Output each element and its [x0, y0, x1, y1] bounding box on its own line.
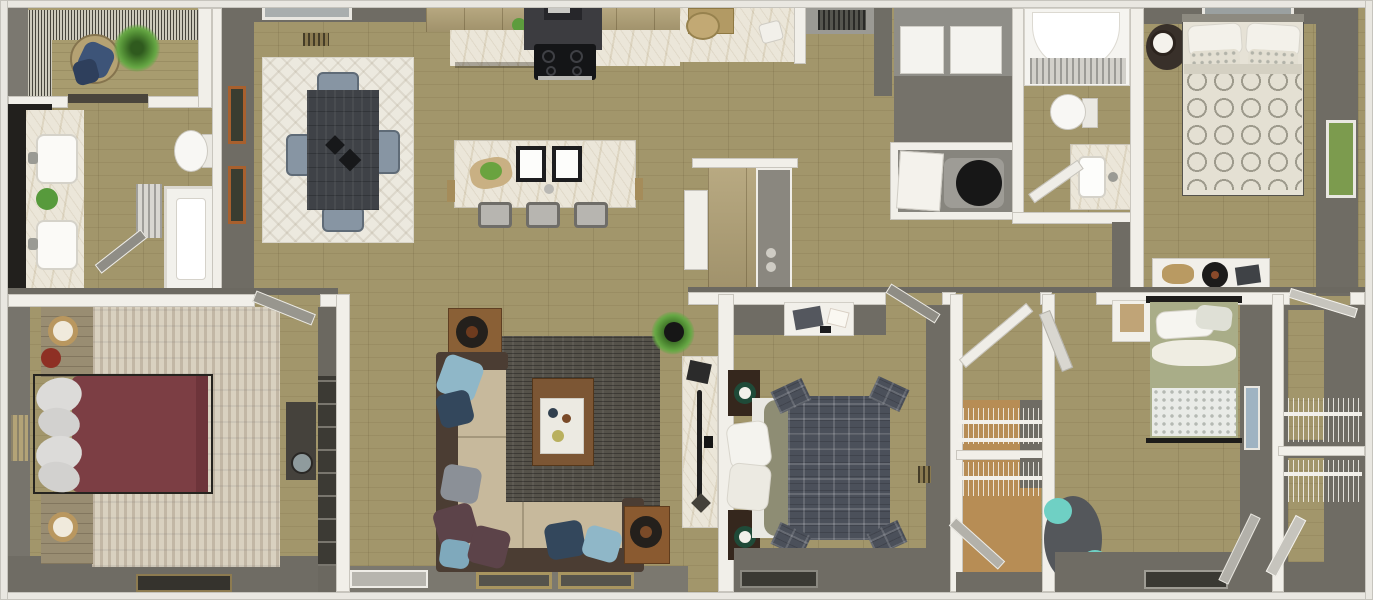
- living-west-wall: [336, 294, 350, 592]
- mbath-sink-1: [36, 134, 78, 184]
- stove-burner-3: [546, 66, 556, 76]
- island-stool-3: [574, 202, 608, 228]
- bed3-duvet: [1184, 68, 1302, 190]
- island-stool-1: [478, 202, 512, 228]
- coffee-table-tray: [540, 398, 584, 454]
- master-lamp-south: [48, 512, 78, 542]
- bed3-dresser-plant: [1162, 264, 1194, 284]
- record-south-center: [640, 526, 652, 538]
- entry-closet-knob-2: [766, 262, 776, 272]
- stove-burner-1: [542, 50, 555, 63]
- dining-west-wall: [222, 8, 254, 296]
- island-faucet: [544, 184, 554, 194]
- dining-wall-art-2: [228, 166, 246, 224]
- outer-wall-left: [0, 0, 8, 600]
- porch-post-right: [198, 8, 212, 108]
- master-floor-mat: [136, 574, 232, 592]
- tray-bottle-2: [562, 414, 571, 423]
- master-mirror: [291, 452, 313, 474]
- closetD-rail: [1284, 472, 1362, 476]
- tv-mount: [704, 436, 713, 448]
- mbath-sink-2: [36, 220, 78, 270]
- entry-closet-door: [756, 168, 792, 292]
- tray-candle: [552, 430, 564, 442]
- sofa-cushion-seam-1: [458, 436, 506, 438]
- dining-wall-art-1: [228, 86, 246, 144]
- living-window-1: [476, 572, 552, 589]
- entry-closet-knob-1: [766, 248, 776, 258]
- mbath-faucet-2: [28, 238, 38, 250]
- stove-handle: [538, 76, 592, 80]
- wall-kitchen-hvac: [794, 6, 806, 64]
- island-handle-right: [635, 178, 643, 200]
- bed4-east-window: [1244, 386, 1260, 450]
- bed2-duvet: [788, 396, 890, 540]
- bed3-doorway-shadow: [1112, 222, 1130, 296]
- bed2-vent: [918, 466, 931, 483]
- washer: [900, 26, 944, 74]
- master-wall-decor: [11, 415, 28, 461]
- console-frame-decor: [686, 360, 712, 384]
- bed4-teal-pillow-1: [1044, 498, 1072, 524]
- closetC-rail: [1284, 412, 1362, 416]
- bed3-record-dot: [1211, 271, 1219, 279]
- sofa-pillow-7: [543, 519, 587, 561]
- master-flowers: [41, 348, 61, 368]
- dining-table: [307, 90, 379, 210]
- tray-bottle-1: [548, 408, 558, 418]
- dryer: [950, 26, 1002, 74]
- mbath-counter-plant: [36, 188, 58, 210]
- closets-divider: [1278, 446, 1365, 456]
- porch-door-header: [68, 94, 148, 103]
- master-duvet: [72, 376, 208, 492]
- porch-plant: [106, 16, 168, 80]
- bath2-sink: [1078, 156, 1106, 198]
- island-sink-left: [516, 146, 546, 182]
- bed4-mattress-foot: [1152, 388, 1236, 436]
- bed3-dresser-laptop: [1235, 264, 1261, 285]
- record-north-center: [466, 326, 478, 338]
- wall-entry-dining: [212, 8, 222, 296]
- stove-burner-4: [572, 66, 582, 76]
- closetA-rail-1: [958, 420, 1044, 424]
- entry-bench: [684, 190, 708, 270]
- master-shelf: [318, 376, 336, 566]
- wall-laundry-bath: [1012, 8, 1024, 224]
- bath2-faucet: [1108, 172, 1118, 182]
- closetB-rail: [958, 476, 1044, 480]
- bed3-duvet-fold: [1184, 64, 1302, 74]
- hvac-vent-grille: [818, 10, 866, 30]
- bed4-south-window: [1144, 570, 1228, 589]
- porch-screen-left: [26, 18, 52, 96]
- midwall-east-e: [1350, 292, 1365, 305]
- master-lamp-north: [48, 316, 78, 346]
- midwall-west-a: [8, 294, 255, 307]
- island-handle-left: [447, 180, 455, 202]
- bed3-wall-art: [1326, 120, 1356, 198]
- bed2-phone: [820, 326, 831, 333]
- dining-vent: [303, 33, 329, 46]
- outer-wall-top: [0, 0, 1373, 8]
- wall-bed2-closet: [950, 294, 963, 592]
- sofa-pillow-3: [439, 463, 483, 505]
- bed2-pillow-2: [726, 462, 773, 512]
- closetB-south-wall: [956, 572, 1044, 592]
- stove: [534, 44, 596, 80]
- stove-burner-2: [570, 50, 583, 63]
- utility-door: [896, 151, 944, 212]
- living-window-2: [558, 572, 634, 589]
- closetD-hangers: [1288, 460, 1360, 502]
- bath2-tub-mat: [1030, 58, 1126, 84]
- closetC-hangers: [1288, 398, 1360, 442]
- water-heater: [956, 160, 1002, 206]
- porch-wall-left: [8, 8, 28, 98]
- bed4-footboard: [1146, 438, 1242, 443]
- tv: [697, 390, 702, 505]
- bed3-headboard: [1182, 14, 1304, 22]
- desk-chair: [686, 12, 720, 40]
- bed3-clock: [1150, 30, 1176, 56]
- hvac-side-panel: [874, 8, 892, 96]
- bed4-pillow-2: [1195, 304, 1233, 332]
- entry-closet-trim: [692, 158, 798, 168]
- range-hood-handle: [548, 8, 570, 13]
- bed4-blanket: [1152, 340, 1236, 366]
- outer-wall-right: [1365, 0, 1373, 600]
- master-duvet-shadow: [196, 376, 208, 492]
- mbath-toilet-bowl: [174, 130, 208, 172]
- island-stool-2: [526, 202, 560, 228]
- bed4-nightstand-drawers: [1120, 304, 1144, 332]
- island-greens: [480, 162, 502, 180]
- sofa-cushion-seam-2: [522, 502, 524, 548]
- bath2-toilet-bowl: [1050, 94, 1086, 130]
- living-sliding-door: [350, 570, 428, 588]
- entry-closet-cabinet: [708, 168, 756, 292]
- mbath-faucet-1: [28, 152, 38, 164]
- mbath-shower-pan: [176, 198, 206, 280]
- laundry-wall: [894, 76, 1012, 142]
- closetA-rail-2: [958, 438, 1044, 442]
- bed2-south-window: [740, 570, 818, 588]
- island-sink-right: [552, 146, 582, 182]
- living-plant-pot: [664, 322, 684, 342]
- floor-plan: [0, 0, 1373, 600]
- bed2-east-wallface: [926, 305, 950, 592]
- wall-bath2-bed3: [1130, 8, 1144, 296]
- outer-wall-bottom: [0, 592, 1373, 600]
